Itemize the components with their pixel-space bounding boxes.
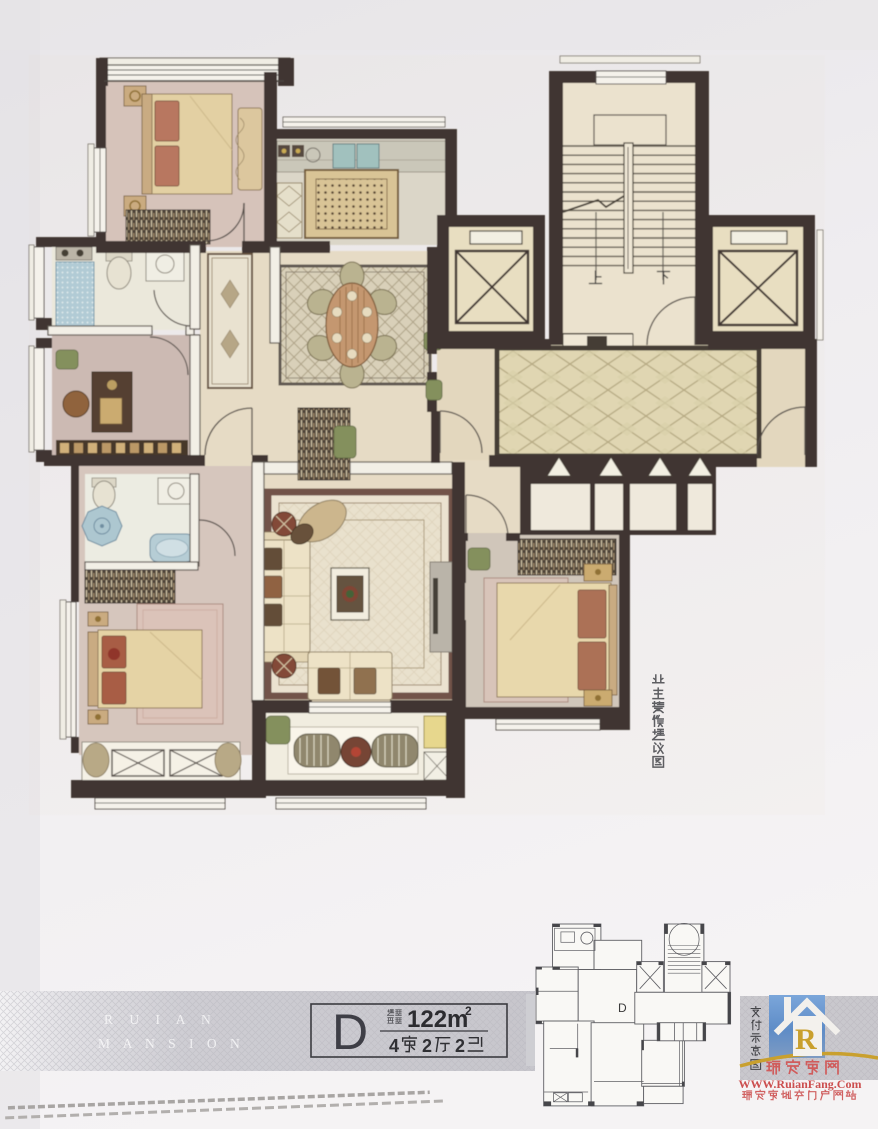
- svg-text:2: 2: [422, 1036, 432, 1056]
- svg-text:4: 4: [389, 1036, 399, 1056]
- svg-text:R U I A N: R U I A N: [104, 1012, 217, 1027]
- svg-text:WWW.RuianFang.Com: WWW.RuianFang.Com: [739, 1077, 862, 1091]
- svg-text:D: D: [332, 1004, 368, 1060]
- svg-text:2: 2: [455, 1036, 465, 1056]
- svg-text:R: R: [795, 1023, 817, 1056]
- svg-text:M A N S I O N: M A N S I O N: [98, 1036, 245, 1051]
- svg-text:D: D: [618, 1001, 627, 1015]
- svg-text:122m: 122m: [407, 1006, 468, 1033]
- svg-text:2: 2: [465, 1004, 472, 1018]
